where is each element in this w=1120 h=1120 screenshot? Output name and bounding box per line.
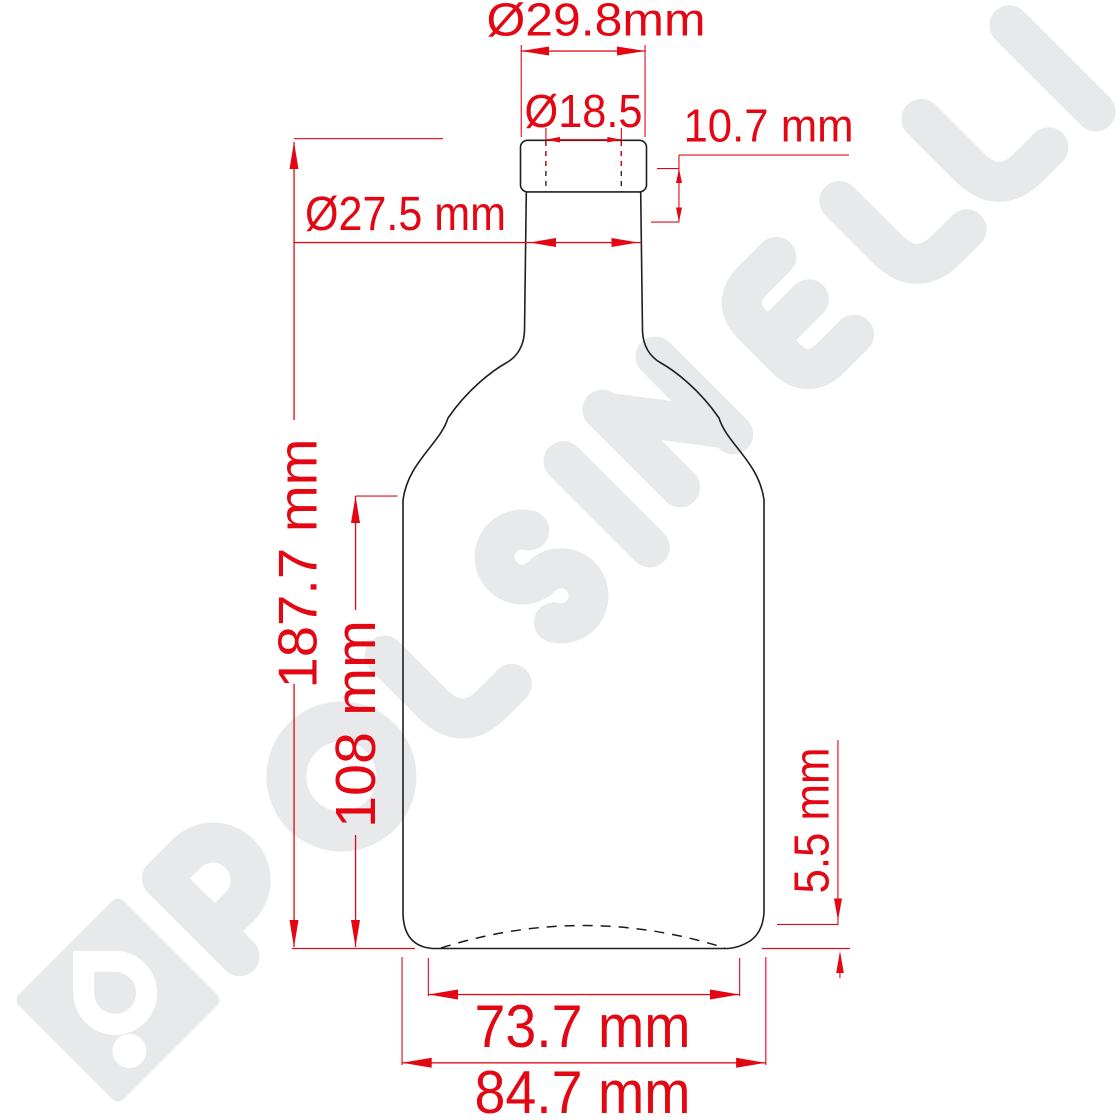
- svg-text:10.7 mm: 10.7 mm: [684, 100, 854, 152]
- svg-text:108 mm: 108 mm: [324, 620, 388, 828]
- svg-text:Ø29.8mm: Ø29.8mm: [487, 0, 706, 46]
- svg-text:187.7 mm: 187.7 mm: [267, 439, 329, 689]
- svg-text:5.5 mm: 5.5 mm: [786, 748, 840, 894]
- svg-text:73.7 mm: 73.7 mm: [475, 993, 691, 1060]
- svg-text:Ø27.5 mm: Ø27.5 mm: [305, 188, 506, 241]
- svg-text:84.7 mm: 84.7 mm: [475, 1059, 691, 1120]
- svg-text:Ø18.5: Ø18.5: [525, 85, 643, 137]
